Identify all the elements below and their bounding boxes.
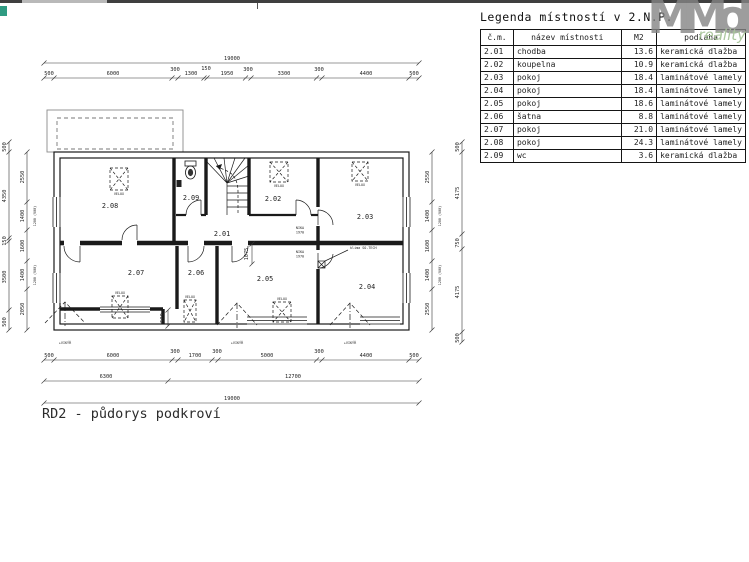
dim-label: 300 <box>314 349 324 355</box>
toilet-icon <box>185 161 196 179</box>
dim-label: 500 <box>44 353 54 359</box>
klima-label: klima SO-TECH <box>350 246 377 250</box>
cell-room-name: koupelna <box>513 59 621 72</box>
cell-area: 21.0 <box>621 124 656 137</box>
table-row: 2.05 pokoj 18.6 laminátové lamely <box>481 98 746 111</box>
cell-room-name: šatna <box>513 111 621 124</box>
cell-room-name: pokoj <box>513 85 621 98</box>
cell-floor: keramická dlažba <box>657 59 746 72</box>
dim-label: 1600 <box>425 240 431 253</box>
cell-floor: keramická dlažba <box>657 150 746 163</box>
cell-floor: laminátové lamely <box>657 111 746 124</box>
cell-floor: laminátové lamely <box>657 124 746 137</box>
cell-room-no: 2.04 <box>481 85 514 98</box>
legend-header-cm: č.m. <box>481 30 514 46</box>
table-row: 2.07 pokoj 21.0 laminátové lamely <box>481 124 746 137</box>
dim-label: 1400 <box>20 210 26 223</box>
dim-label: 12700 <box>285 374 301 380</box>
legend-header-m2: M2 <box>621 30 656 46</box>
velux-label: VELUX <box>185 295 196 299</box>
dim-label: 6300 <box>100 374 113 380</box>
room-label-201: 2.01 <box>214 230 230 238</box>
dim-label: 500 <box>44 71 54 77</box>
cell-area: 18.4 <box>621 72 656 85</box>
cell-room-no: 2.01 <box>481 46 514 59</box>
dimension-lines <box>7 61 465 406</box>
nika-label: 1970 <box>296 255 304 259</box>
dim-label: 4175 <box>455 286 461 299</box>
dim-label: 500 <box>455 333 461 343</box>
sink-icon <box>177 180 182 187</box>
dim-label: 300 <box>243 67 253 73</box>
cell-floor: laminátové lamely <box>657 137 746 150</box>
velux-label: VELUX <box>115 291 126 295</box>
table-row: 2.09 wc 3.6 keramická dlažba <box>481 150 746 163</box>
cell-area: 18.4 <box>621 85 656 98</box>
dim-label: 150 <box>201 66 211 72</box>
cell-room-no: 2.06 <box>481 111 514 124</box>
dim-label: 1200 (900) <box>438 265 442 285</box>
dim-label: 1200 (900) <box>33 206 37 226</box>
dim-label: 6000 <box>107 353 120 359</box>
dim-label: 300 <box>212 349 222 355</box>
cell-room-name: wc <box>513 150 621 163</box>
legend-header-podlaha: podlaha <box>657 30 746 46</box>
cell-room-name: pokoj <box>513 72 621 85</box>
dim-label: 1400 <box>425 269 431 282</box>
table-row: 2.02 koupelna 10.9 keramická dlažba <box>481 59 746 72</box>
dim-label: 500 <box>409 71 419 77</box>
dim-label: 500 <box>455 142 461 152</box>
dim-label: 2050 <box>20 303 26 316</box>
floor-plan-drawing: 2.01 2.02 2.03 2.04 2.05 2.06 2.07 2.08 … <box>0 0 470 450</box>
dim-label: 4175 <box>455 187 461 200</box>
dim-label: 750 <box>455 238 461 248</box>
cell-area: 3.6 <box>621 150 656 163</box>
velux-label: VELUX <box>114 192 125 196</box>
velux-label: VELUX <box>355 183 366 187</box>
dim-label: 1300 <box>185 71 198 77</box>
room-label-203: 2.03 <box>357 213 373 221</box>
dim-label: 3300 <box>278 71 291 77</box>
dormer-label: +VIKÝŘ <box>231 340 244 345</box>
cell-floor: laminátové lamely <box>657 85 746 98</box>
legend-title: Legenda místností v 2.N.P. <box>480 10 748 24</box>
nika-label: 1970 <box>296 231 304 235</box>
cell-area: 10.9 <box>621 59 656 72</box>
cell-room-no: 2.07 <box>481 124 514 137</box>
roof-outline <box>47 110 183 152</box>
dim-label: 19000 <box>224 56 240 62</box>
dim-label: 500 <box>160 313 166 323</box>
dim-label: 1950 <box>221 71 234 77</box>
legend-panel: Legenda místností v 2.N.P. č.m. název mí… <box>480 10 748 163</box>
room-label-205: 2.05 <box>257 275 273 283</box>
dim-label: 5000 <box>261 353 274 359</box>
staircase <box>207 158 249 215</box>
cell-room-no: 2.08 <box>481 137 514 150</box>
cell-room-no: 2.09 <box>481 150 514 163</box>
room-label-209: 2.09 <box>183 194 199 202</box>
cell-floor: laminátové lamely <box>657 72 746 85</box>
table-row: 2.03 pokoj 18.4 laminátové lamely <box>481 72 746 85</box>
dim-label: 1400 <box>425 210 431 223</box>
cell-room-no: 2.02 <box>481 59 514 72</box>
cell-area: 8.8 <box>621 111 656 124</box>
room-label-204: 2.04 <box>359 283 375 291</box>
cell-room-name: pokoj <box>513 98 621 111</box>
cell-floor: keramická dlažba <box>657 46 746 59</box>
legend-header-row: č.m. název místnosti M2 podlaha <box>481 30 746 46</box>
cell-area: 13.6 <box>621 46 656 59</box>
legend-table: č.m. název místnosti M2 podlaha 2.01 cho… <box>480 29 746 163</box>
legend-header-nazev: název místnosti <box>513 30 621 46</box>
dim-label: 300 <box>170 67 180 73</box>
cell-room-no: 2.05 <box>481 98 514 111</box>
cell-room-name: pokoj <box>513 137 621 150</box>
dim-label: 4350 <box>2 190 8 203</box>
dormer-label: +VIKÝŘ <box>59 340 72 345</box>
room-label-207: 2.07 <box>128 269 144 277</box>
room-label-202: 2.02 <box>265 195 281 203</box>
dim-label: 300 <box>314 67 324 73</box>
table-row: 2.01 chodba 13.6 keramická dlažba <box>481 46 746 59</box>
cell-room-no: 2.03 <box>481 72 514 85</box>
dormer-label: +VIKÝŘ <box>344 340 357 345</box>
main-cross-wall <box>60 243 403 309</box>
dim-label: 4400 <box>360 353 373 359</box>
drawing-title: RD2 - půdorys podkroví <box>42 406 221 422</box>
dim-label: 300 <box>170 349 180 355</box>
dim-label: 2550 <box>20 171 26 184</box>
dim-label: 2550 <box>425 171 431 184</box>
dim-label: 19000 <box>224 396 240 402</box>
dim-label: 1400 <box>20 269 26 282</box>
velux-label: VELUX <box>277 297 288 301</box>
table-row: 2.08 pokoj 24.3 laminátové lamely <box>481 137 746 150</box>
cell-area: 24.3 <box>621 137 656 150</box>
dim-label: 500 <box>2 317 8 327</box>
dim-label: 1200 (900) <box>438 206 442 226</box>
dim-label: 1700 <box>189 353 202 359</box>
dim-label: 150 <box>2 236 8 246</box>
dim-label: 3500 <box>2 271 8 284</box>
dim-label: 500 <box>2 142 8 152</box>
room-label-206: 2.06 <box>188 269 204 277</box>
drawing-page: { "page": { "title_block": "RD2 - půdory… <box>0 0 749 562</box>
dim-label: 1200 (900) <box>33 265 37 285</box>
dim-label: 500 <box>409 353 419 359</box>
dim-label: 4400 <box>360 71 373 77</box>
nika-label: NIKA <box>296 226 304 230</box>
table-row: 2.04 pokoj 18.4 laminátové lamely <box>481 85 746 98</box>
cell-room-name: chodba <box>513 46 621 59</box>
room-label-208: 2.08 <box>102 202 118 210</box>
cell-room-name: pokoj <box>513 124 621 137</box>
dim-label: 1600 <box>20 240 26 253</box>
dim-label: 6000 <box>107 71 120 77</box>
velux-label: VELUX <box>274 184 285 188</box>
table-row: 2.06 šatna 8.8 laminátové lamely <box>481 111 746 124</box>
dim-label: 2550 <box>425 303 431 316</box>
dim-label: 1075 <box>244 248 250 261</box>
cell-area: 18.6 <box>621 98 656 111</box>
doors <box>64 200 333 268</box>
klima-unit-icon <box>318 250 348 268</box>
cell-floor: laminátové lamely <box>657 98 746 111</box>
nika-label: NIKA <box>296 250 304 254</box>
